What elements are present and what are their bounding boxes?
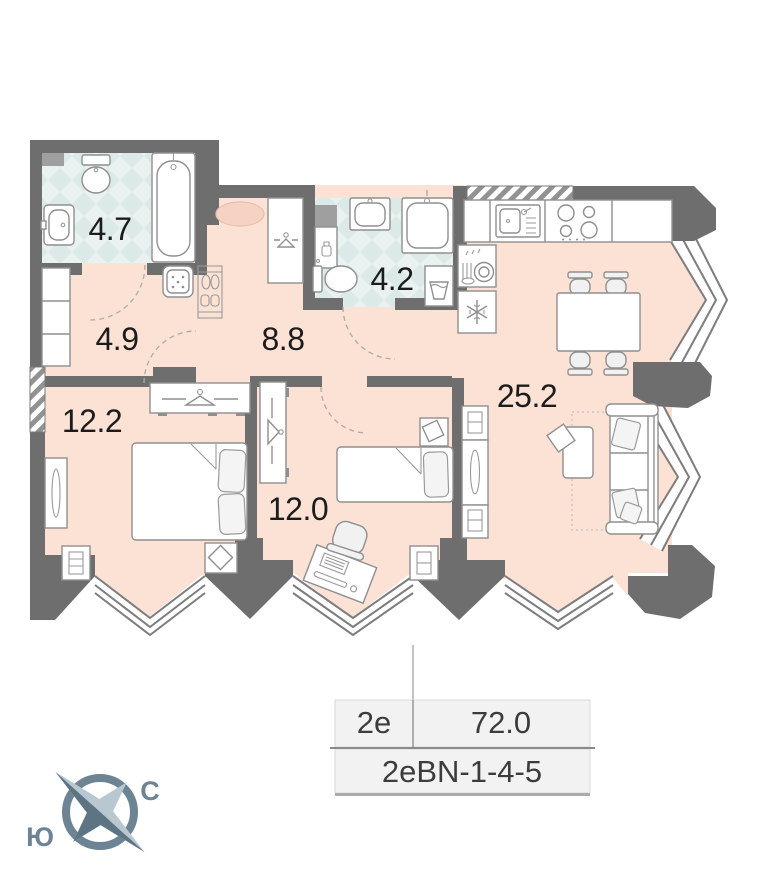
sink-2-icon (350, 198, 390, 230)
pouf-icon (205, 543, 237, 573)
wardrobe-icon (150, 383, 250, 416)
sink-icon (41, 205, 74, 245)
soap-shelf-icon (315, 227, 337, 268)
room-label-bedroom-2: 12.0 (268, 491, 328, 527)
floor-plan-page: 4.7 4.9 8.8 4.2 12.2 12.0 25.2 2е 72.0 2… (0, 0, 760, 890)
chair-icon (606, 352, 626, 368)
bedside-table-icon (420, 418, 448, 446)
laundry-basket-icon (425, 266, 453, 306)
water-heater-icon (163, 266, 193, 297)
shelf-ledge-2 (315, 205, 337, 227)
compass-south-label: Ю (26, 822, 54, 852)
nightstand-2-icon (410, 546, 438, 580)
single-bed-icon (337, 447, 453, 502)
area-total-value: 72.0 (471, 705, 531, 740)
entrance-rug (216, 202, 264, 226)
shaft-hatch-left (30, 367, 45, 432)
room-label-hallway: 4.9 (96, 321, 139, 357)
fridge-snowflake-icon (458, 291, 496, 333)
compass-star (29, 742, 172, 882)
dining-table-icon (557, 293, 640, 351)
double-bed-icon (132, 443, 247, 540)
compass: С Ю (26, 742, 171, 882)
dishwasher-icon (458, 245, 496, 287)
shelf-ledge (42, 153, 64, 166)
nightstand-icon (62, 546, 90, 580)
chair-icon (570, 352, 590, 368)
room-label-living: 25.2 (497, 378, 557, 414)
wardrobe-2-icon (260, 382, 289, 483)
entrance-wardrobe-icon (268, 198, 303, 283)
closet-icon (42, 268, 70, 366)
room-label-bedroom-1: 12.2 (62, 403, 122, 439)
layout-code-value: 2еBN-1-4-5 (382, 754, 542, 789)
shower-basin-icon (402, 190, 453, 253)
toilet-icon (82, 155, 110, 193)
shelf-unit-icon (462, 406, 488, 538)
sofa-icon (606, 404, 658, 534)
shaft-hatch-kitchen (467, 186, 573, 200)
floor-plan-svg: 4.7 4.9 8.8 4.2 12.2 12.0 25.2 2е 72.0 2… (0, 0, 760, 890)
room-label-bathroom-2: 4.2 (371, 261, 414, 297)
room-label-corridor: 8.8 (262, 321, 305, 357)
room-label-bathroom-1: 4.7 (89, 211, 132, 247)
mirror-icon (45, 458, 67, 528)
unit-type-value: 2е (357, 705, 391, 740)
compass-north-label: С (140, 776, 160, 806)
info-table: 2е 72.0 2еBN-1-4-5 (330, 645, 595, 795)
kitchen-sink-icon (496, 205, 540, 237)
chair-icon (568, 272, 592, 278)
bathtub-icon (152, 153, 195, 262)
chair-icon (604, 272, 628, 278)
